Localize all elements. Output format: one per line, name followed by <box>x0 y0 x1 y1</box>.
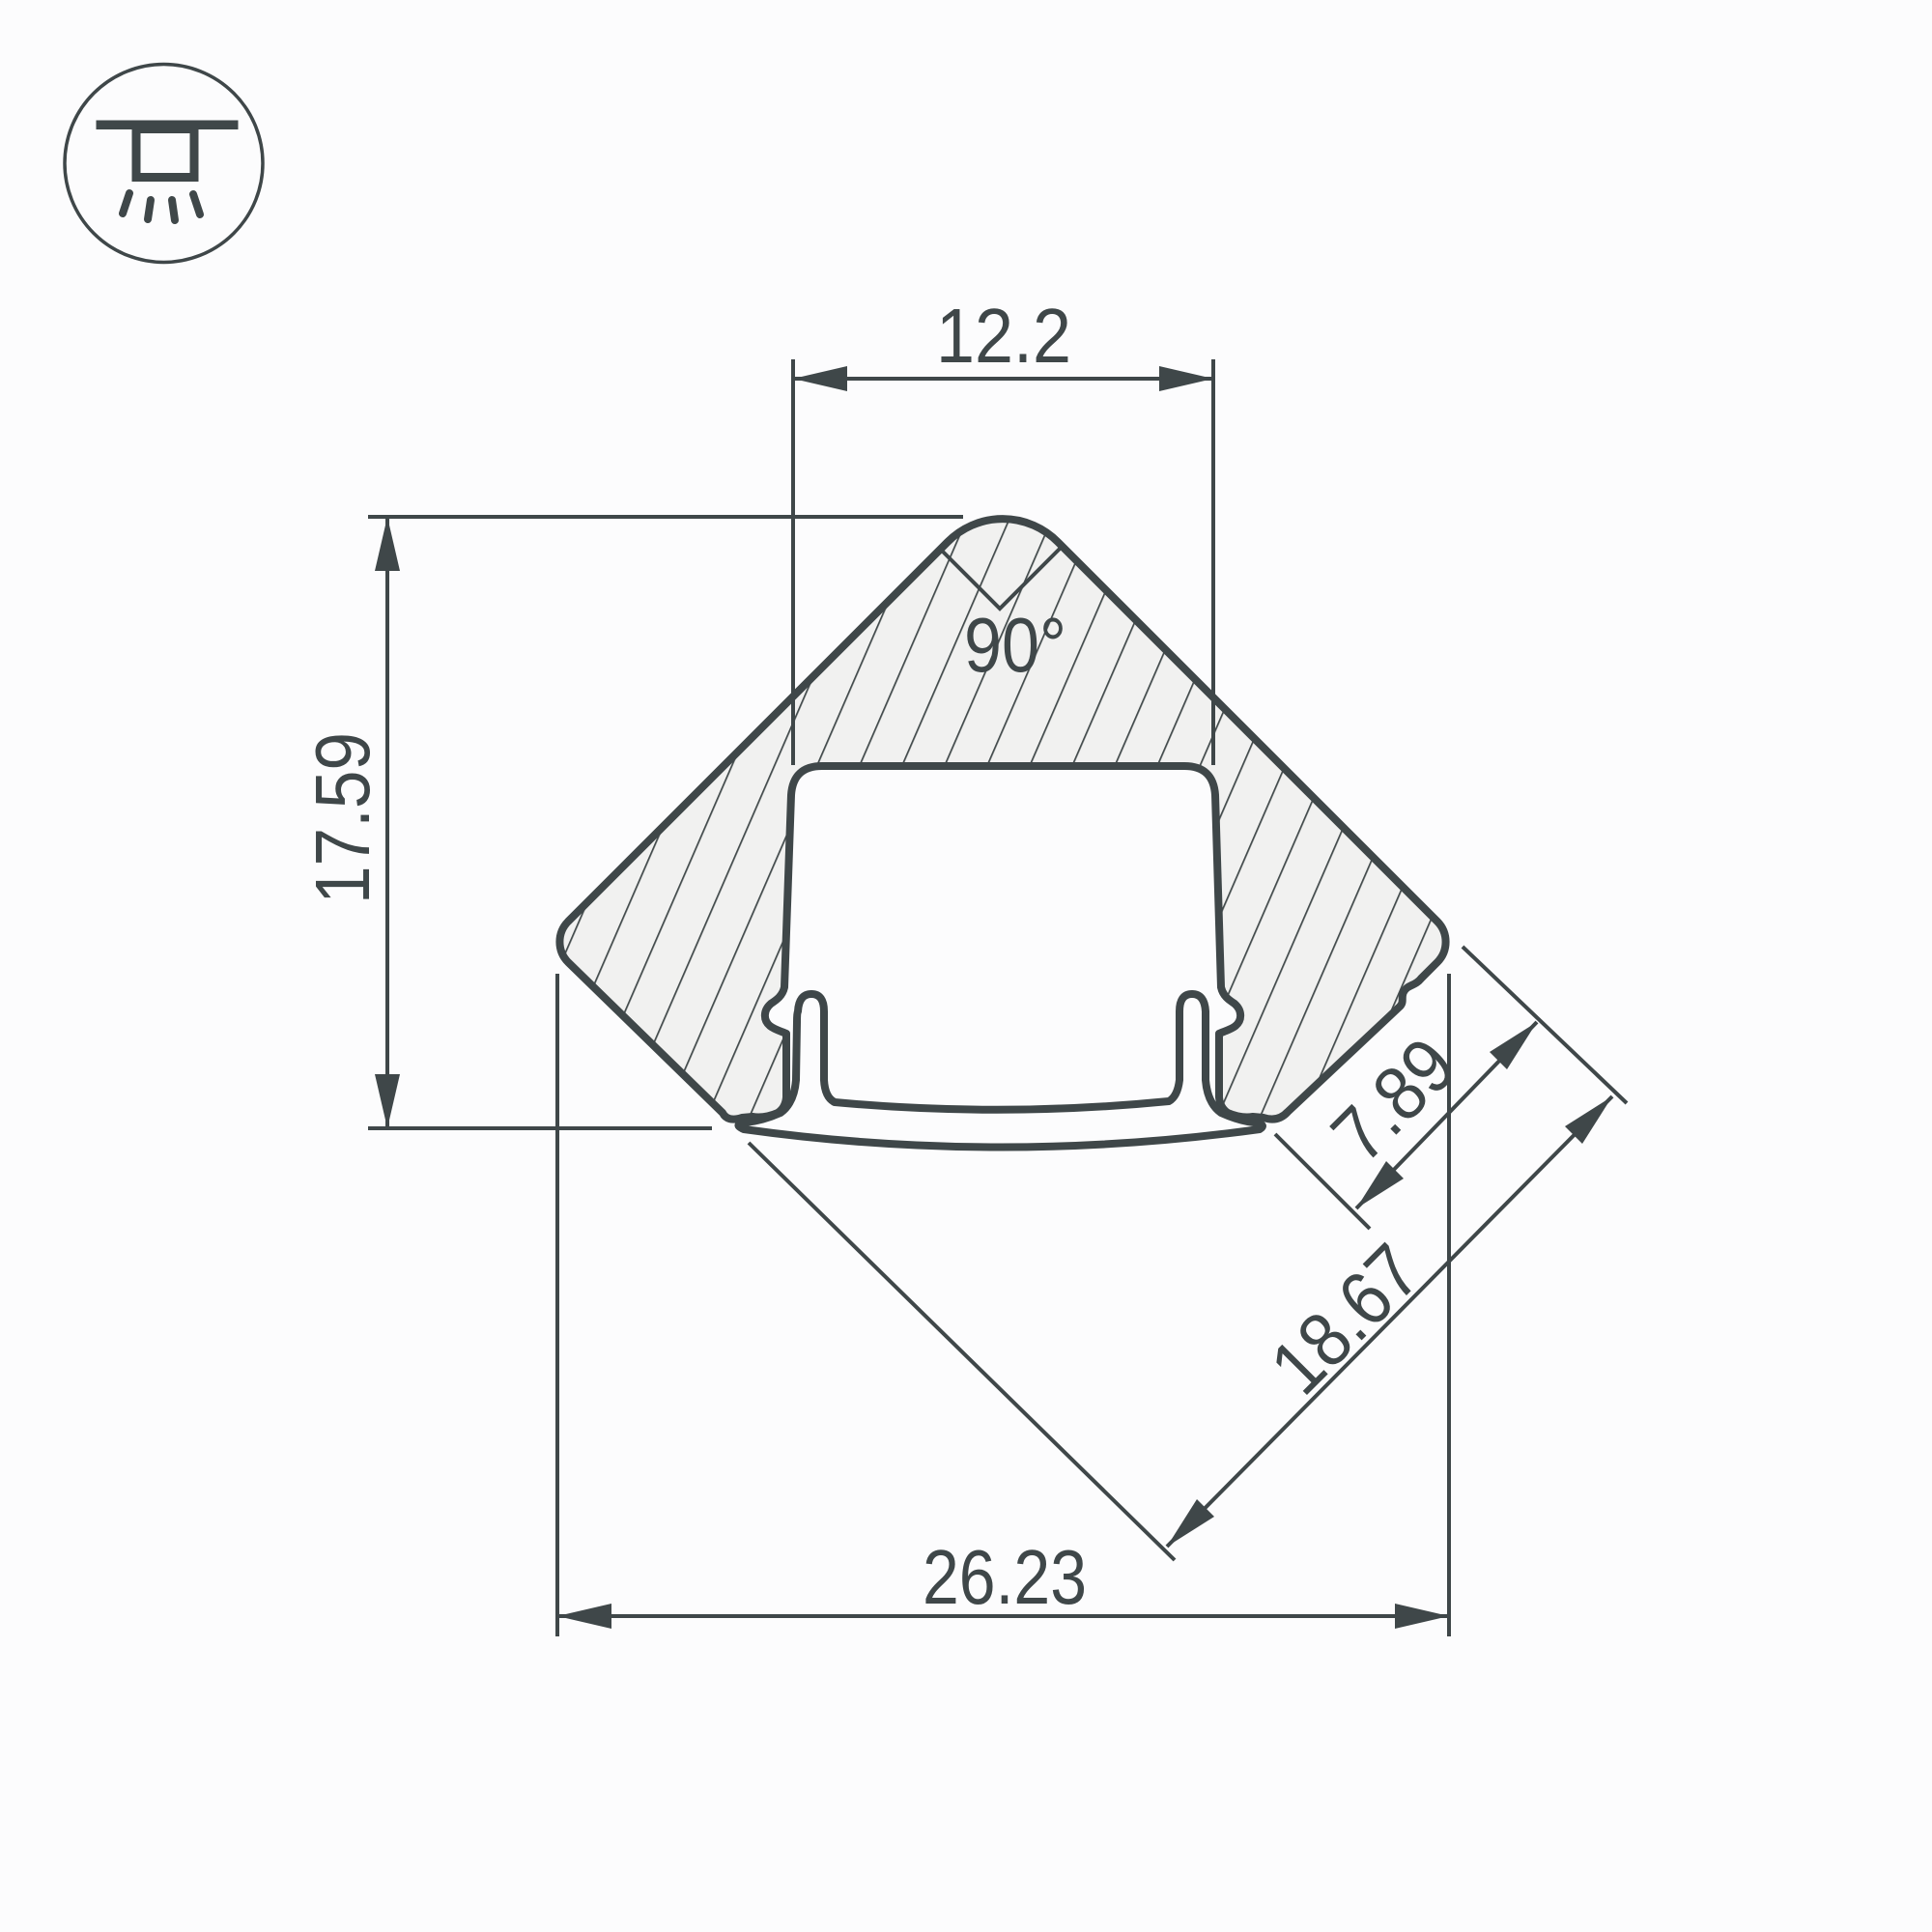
svg-text:12.2: 12.2 <box>936 293 1071 379</box>
svg-text:18.67: 18.67 <box>1254 1228 1436 1410</box>
svg-text:90°: 90° <box>964 602 1066 688</box>
svg-text:17.59: 17.59 <box>299 732 385 904</box>
svg-text:26.23: 26.23 <box>923 1534 1087 1620</box>
